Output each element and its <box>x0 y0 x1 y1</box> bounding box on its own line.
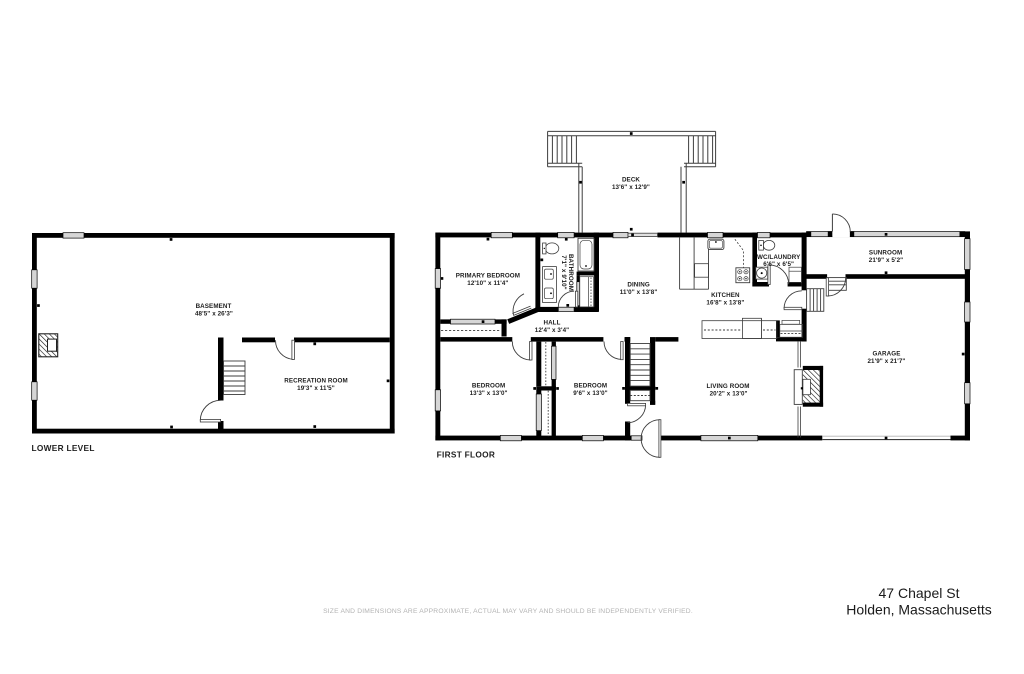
svg-text:LOWER LEVEL: LOWER LEVEL <box>32 443 95 453</box>
svg-text:12'4" x 3'4": 12'4" x 3'4" <box>535 327 569 334</box>
svg-text:BASEMENT: BASEMENT <box>196 303 232 310</box>
svg-text:Holden, Massachusetts: Holden, Massachusetts <box>846 601 992 617</box>
svg-text:7'1" x 9'10": 7'1" x 9'10" <box>560 255 567 289</box>
svg-text:13'3" x 13'0": 13'3" x 13'0" <box>470 390 508 397</box>
svg-text:BATHROOM: BATHROOM <box>567 254 574 291</box>
svg-text:11'0" x 13'8": 11'0" x 13'8" <box>620 289 658 296</box>
svg-text:47 Chapel St: 47 Chapel St <box>879 585 960 601</box>
svg-text:21'9" x 21'7": 21'9" x 21'7" <box>867 358 905 365</box>
svg-text:BEDROOM: BEDROOM <box>472 382 505 389</box>
svg-text:DECK: DECK <box>622 176 640 183</box>
svg-text:16'8" x 13'8": 16'8" x 13'8" <box>706 299 744 306</box>
svg-text:12'10" x 11'4": 12'10" x 11'4" <box>467 280 508 287</box>
svg-text:PRIMARY BEDROOM: PRIMARY BEDROOM <box>456 272 520 279</box>
svg-text:FIRST FLOOR: FIRST FLOOR <box>437 450 496 460</box>
svg-text:RECREATION ROOM: RECREATION ROOM <box>284 377 348 384</box>
svg-text:19'3" x 11'5": 19'3" x 11'5" <box>297 385 335 392</box>
svg-text:KITCHEN: KITCHEN <box>711 292 740 299</box>
svg-text:9'6" x 13'0": 9'6" x 13'0" <box>573 390 607 397</box>
svg-text:21'9" x 5'2": 21'9" x 5'2" <box>869 257 903 264</box>
svg-text:6'6" x 6'5": 6'6" x 6'5" <box>763 261 794 268</box>
svg-text:BEDROOM: BEDROOM <box>574 382 607 389</box>
svg-text:WC/LAUNDRY: WC/LAUNDRY <box>757 254 801 261</box>
svg-text:SUNROOM: SUNROOM <box>869 249 902 256</box>
svg-text:GARAGE: GARAGE <box>872 350 900 357</box>
svg-text:SIZE AND DIMENSIONS ARE APPROX: SIZE AND DIMENSIONS ARE APPROXIMATE, ACT… <box>323 608 693 615</box>
svg-text:LIVING ROOM: LIVING ROOM <box>706 383 749 390</box>
svg-text:48'5" x 26'3": 48'5" x 26'3" <box>195 310 233 317</box>
svg-text:20'2" x 13'0": 20'2" x 13'0" <box>710 390 748 397</box>
svg-text:HALL: HALL <box>543 319 560 326</box>
svg-text:DINING: DINING <box>627 281 650 288</box>
svg-text:13'6" x 12'9": 13'6" x 12'9" <box>612 184 650 191</box>
